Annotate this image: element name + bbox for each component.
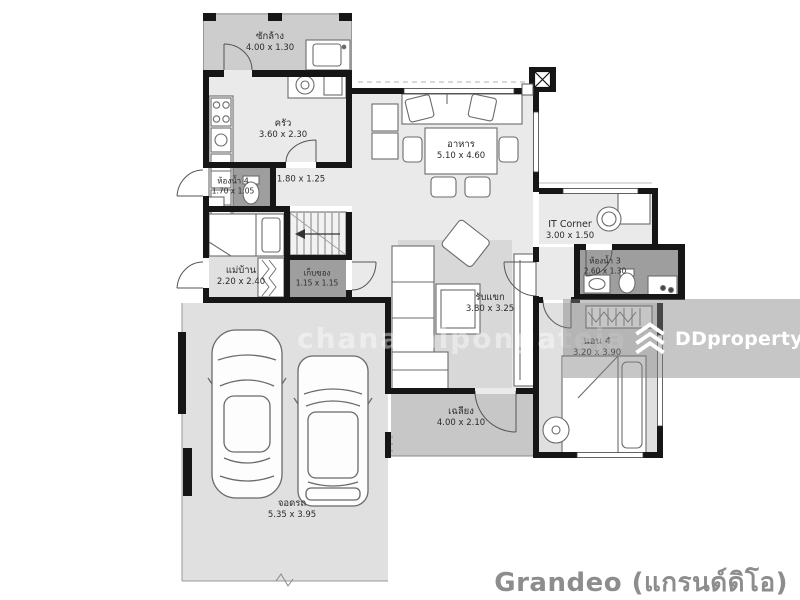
project-name: Grandeo (แกรนด์ดิโอ) bbox=[494, 562, 788, 600]
room-dim: 1.70 x 1.05 bbox=[212, 186, 255, 195]
room-name: เฉลียง bbox=[437, 406, 485, 418]
room-dim: 1.15 x 1.15 bbox=[296, 278, 339, 287]
room-label-carport: จอดรถ5.35 x 3.95 bbox=[268, 498, 316, 521]
ddproperty-logo: DDproperty bbox=[633, 321, 800, 357]
room-dim: 1.80 x 1.25 bbox=[277, 175, 325, 186]
room-name: ครัว bbox=[259, 118, 307, 130]
room-label-living: รับแขก3.80 x 3.25 bbox=[466, 292, 514, 315]
column bbox=[522, 67, 556, 95]
room-dim: 3.00 x 1.50 bbox=[546, 231, 594, 242]
car-suv bbox=[294, 356, 372, 506]
room-dim: 3.60 x 2.30 bbox=[259, 130, 307, 141]
room-name: ห้องน้ำ 3 bbox=[584, 256, 627, 266]
room-dim: 2.60 x 1.30 bbox=[584, 266, 627, 275]
staircase bbox=[290, 212, 346, 255]
room-name: จอดรถ bbox=[268, 498, 316, 510]
room-label-bath3: ห้องน้ำ 32.60 x 1.30 bbox=[584, 256, 627, 275]
room-name: แม่บ้าน bbox=[217, 265, 265, 277]
room-dim: 2.20 x 2.40 bbox=[217, 277, 265, 288]
car-sedan bbox=[208, 330, 286, 498]
room-label-storage: เก็บของ1.15 x 1.15 bbox=[296, 268, 339, 287]
room-dim: 5.10 x 4.60 bbox=[437, 151, 485, 162]
chevron-logo-icon bbox=[633, 321, 667, 357]
room-name: IT Corner bbox=[546, 219, 594, 231]
room-label-porch: เฉลียง4.00 x 2.10 bbox=[437, 406, 485, 429]
room-label-hall: 1.80 x 1.25 bbox=[277, 175, 325, 186]
room-label-bath4: ห้องน้ำ 41.70 x 1.05 bbox=[212, 176, 255, 195]
room-dim: 4.00 x 2.10 bbox=[437, 418, 485, 429]
room-name: เก็บของ bbox=[296, 268, 339, 278]
room-label-laundry: ซักล้าง4.00 x 1.30 bbox=[246, 31, 294, 54]
floor-plan: ซักล้าง4.00 x 1.30 ครัว3.60 x 2.30 ห้องน… bbox=[0, 0, 800, 600]
room-name: รับแขก bbox=[466, 292, 514, 304]
room-dim: 3.80 x 3.25 bbox=[466, 304, 514, 315]
room-name: ซักล้าง bbox=[246, 31, 294, 43]
room-label-maid: แม่บ้าน2.20 x 2.40 bbox=[217, 265, 265, 288]
room-label-it-corner: IT Corner3.00 x 1.50 bbox=[546, 219, 594, 242]
room-label-dining: อาหาร5.10 x 4.60 bbox=[437, 139, 485, 162]
room-dim: 4.00 x 1.30 bbox=[246, 43, 294, 54]
room-name: อาหาร bbox=[437, 139, 485, 151]
room-dim: 5.35 x 3.95 bbox=[268, 510, 316, 521]
watermark-band: DDproperty bbox=[563, 299, 800, 378]
brand-name: DDproperty bbox=[675, 328, 800, 350]
room-name: ห้องน้ำ 4 bbox=[212, 176, 255, 186]
room-label-kitchen: ครัว3.60 x 2.30 bbox=[259, 118, 307, 141]
